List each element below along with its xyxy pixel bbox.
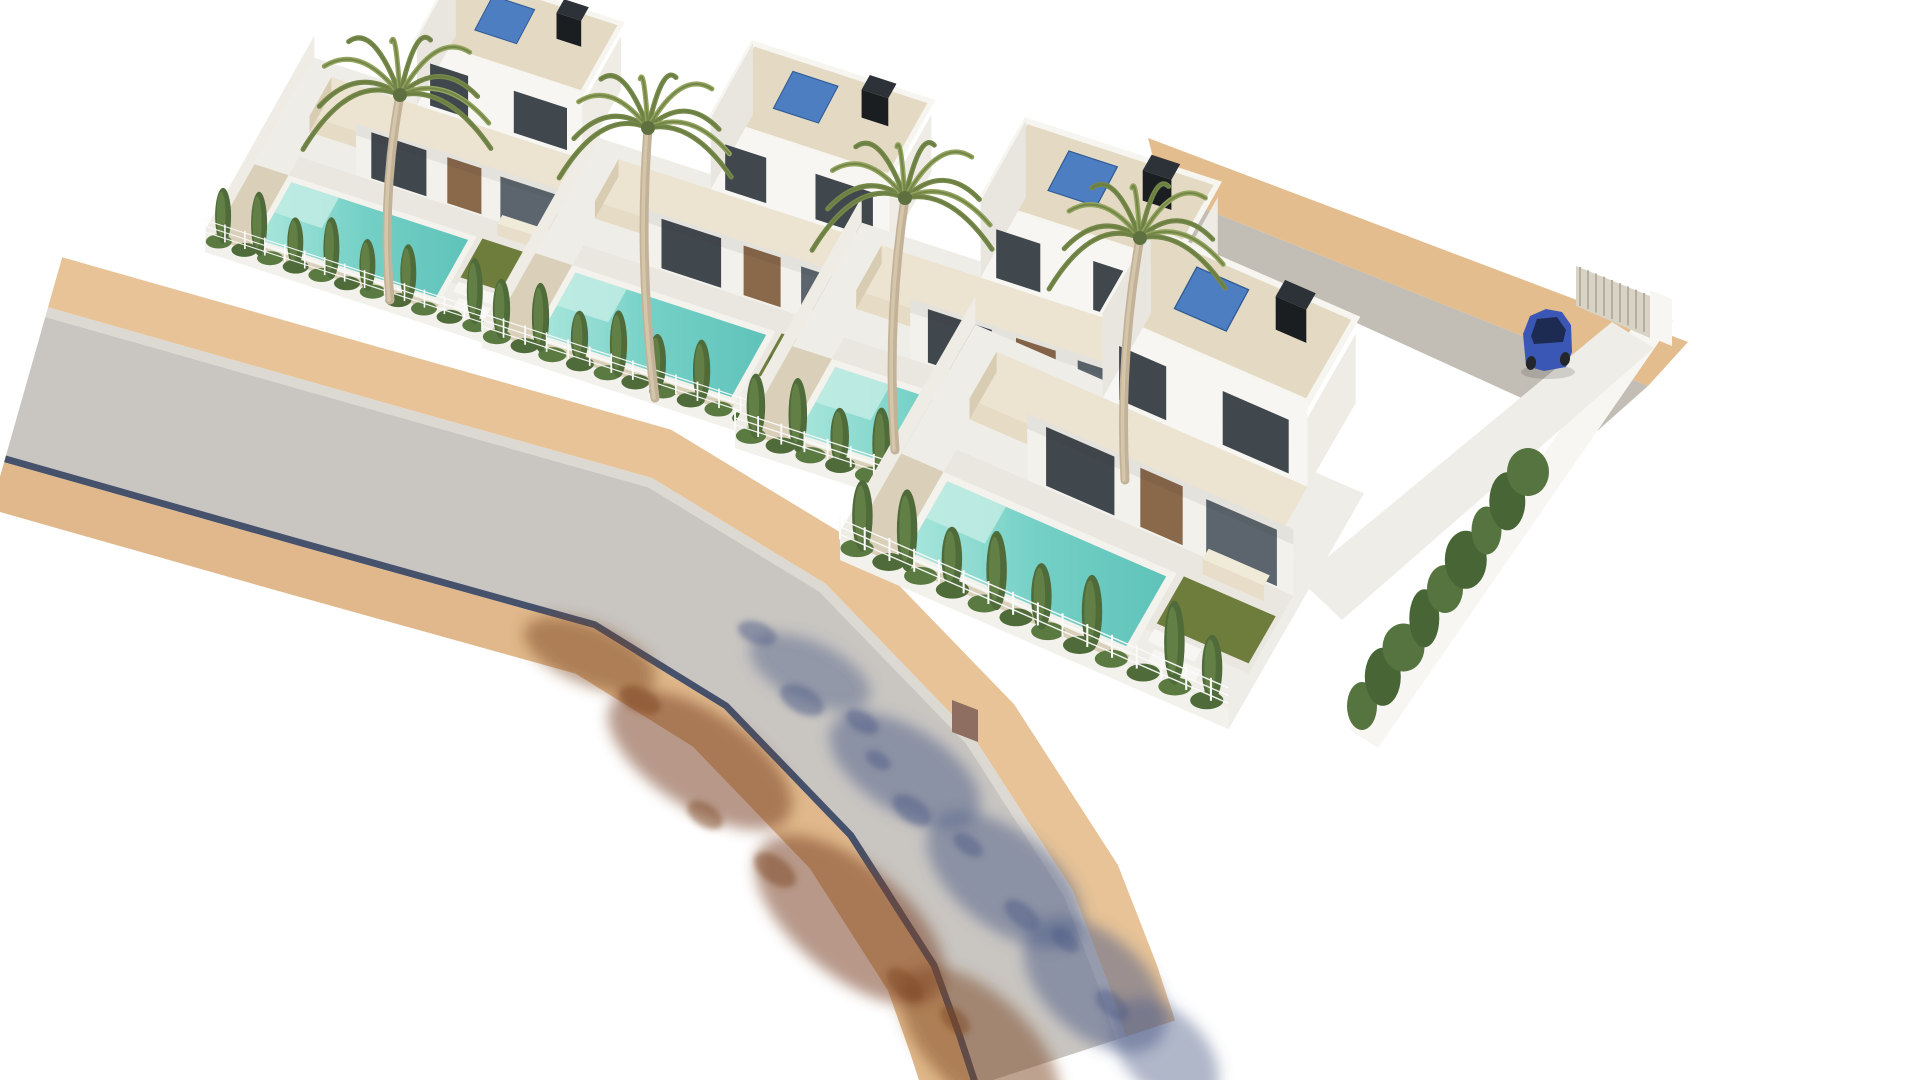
palm-crown-tuft bbox=[898, 191, 912, 205]
cypress-highlight bbox=[325, 221, 334, 271]
palm-crown-tuft bbox=[641, 121, 655, 135]
cypress-highlight bbox=[402, 248, 411, 294]
palm-crown-tuft bbox=[1133, 231, 1147, 245]
gate-pillar bbox=[1650, 290, 1672, 346]
cypress-highlight bbox=[534, 288, 544, 343]
cypress-highlight bbox=[989, 537, 1001, 600]
cypress-highlight bbox=[612, 315, 622, 369]
architectural-render-page bbox=[0, 0, 1920, 1080]
cypress-highlight bbox=[1167, 607, 1179, 675]
cypress-highlight bbox=[899, 496, 911, 562]
cypress-highlight bbox=[791, 383, 801, 442]
villa-development-render bbox=[0, 0, 1920, 1080]
palm-crown-tuft bbox=[393, 88, 407, 102]
cypress-highlight bbox=[695, 344, 705, 394]
hedge-shrub bbox=[1507, 448, 1549, 496]
cypress-highlight bbox=[1084, 580, 1096, 639]
cypress-highlight bbox=[253, 196, 262, 247]
